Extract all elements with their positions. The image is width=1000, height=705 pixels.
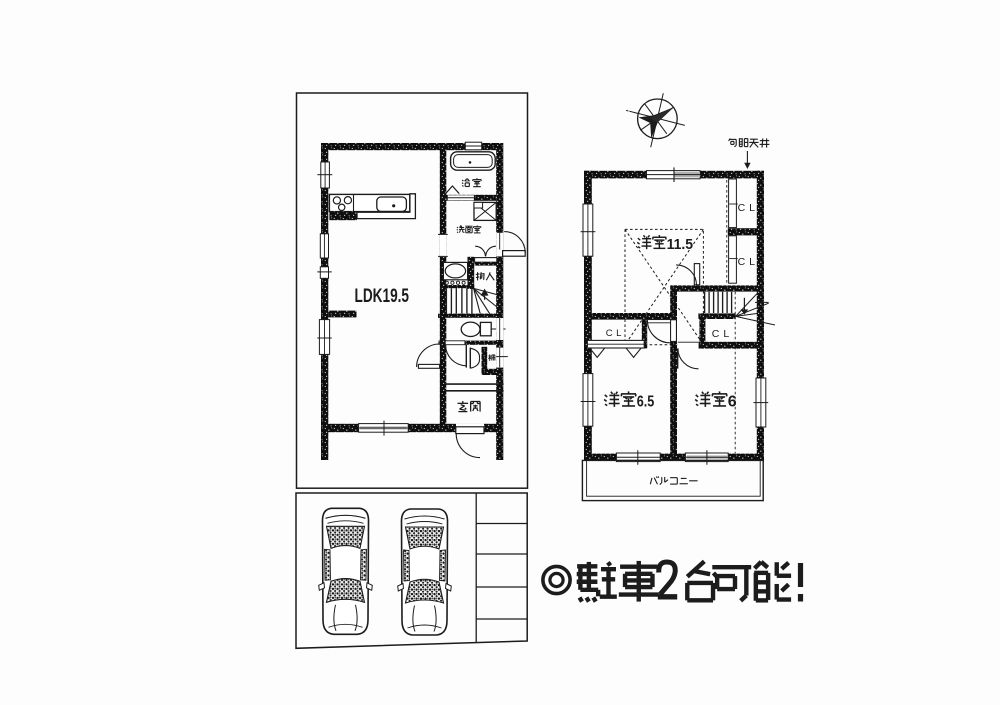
svg-text:CL: CL	[738, 256, 759, 268]
svg-text:6: 6	[728, 393, 737, 410]
svg-text:CL: CL	[606, 328, 625, 339]
svg-text:CL: CL	[712, 328, 733, 340]
svg-text:11.5: 11.5	[667, 237, 694, 253]
svg-text:CL: CL	[738, 202, 759, 214]
svg-text:LDK19.5: LDK19.5	[355, 286, 410, 307]
svg-text:6.5: 6.5	[637, 393, 655, 410]
